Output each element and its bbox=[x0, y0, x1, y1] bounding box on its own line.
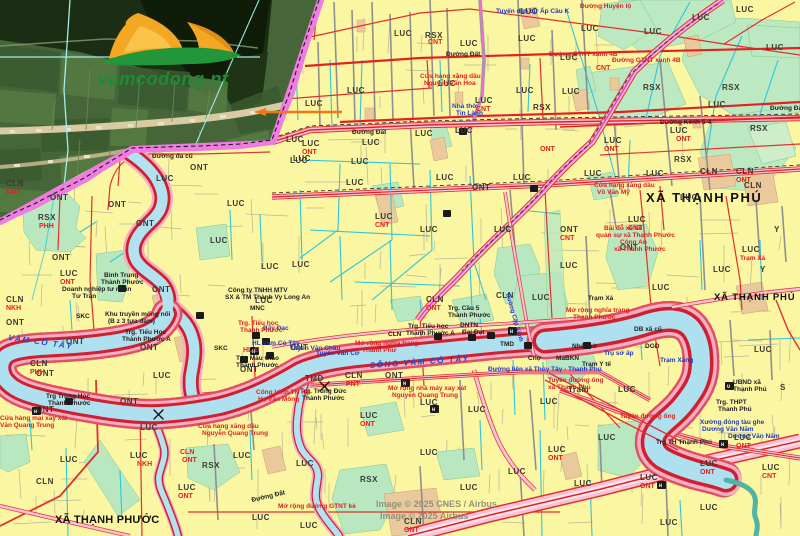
svg-text:Đường Huyện lộ: Đường Huyện lộ bbox=[580, 3, 631, 10]
svg-text:LUC: LUC bbox=[153, 371, 171, 380]
svg-text:LUC: LUC bbox=[670, 126, 688, 135]
svg-text:Mở rộng nghĩa trang: Mở rộng nghĩa trang bbox=[355, 340, 419, 347]
svg-text:HL.Đ: HL.Đ bbox=[243, 347, 259, 354]
svg-text:LUC: LUC bbox=[736, 5, 754, 14]
svg-text:Image © 2025 Airbus: Image © 2025 Airbus bbox=[380, 511, 468, 521]
svg-text:Trg. Mẫu Giáo: Trg. Mẫu Giáo bbox=[236, 353, 279, 362]
svg-text:Dương Văn Năm: Dương Văn Năm bbox=[702, 426, 754, 433]
svg-text:PHH: PHH bbox=[30, 369, 45, 376]
svg-text:xã Thành Phước: xã Thành Phước bbox=[614, 246, 666, 253]
svg-text:CLN: CLN bbox=[36, 477, 54, 486]
svg-text:ONT: ONT bbox=[182, 457, 198, 464]
svg-text:LUC: LUC bbox=[420, 225, 438, 234]
svg-text:LUC: LUC bbox=[156, 174, 174, 183]
svg-text:LUC: LUC bbox=[302, 139, 320, 148]
svg-text:Trg. Tiểu học: Trg. Tiểu học bbox=[408, 322, 449, 330]
svg-text:ONT: ONT bbox=[50, 193, 68, 202]
svg-text:LUC: LUC bbox=[420, 398, 438, 407]
svg-text:LUC: LUC bbox=[292, 260, 310, 269]
svg-text:CNT: CNT bbox=[762, 473, 777, 480]
svg-text:Đường Đất: Đường Đất bbox=[446, 50, 481, 58]
svg-text:LUC: LUC bbox=[475, 96, 493, 105]
svg-text:LUC: LUC bbox=[754, 345, 772, 354]
svg-text:SKC: SKC bbox=[76, 313, 90, 320]
svg-text:Cửa hàng xăng dầu: Cửa hàng xăng dầu bbox=[198, 421, 259, 430]
svg-text:RSX: RSX bbox=[674, 155, 692, 164]
svg-text:Thành Phước: Thành Phước bbox=[48, 400, 91, 407]
svg-text:ONT: ONT bbox=[190, 163, 208, 172]
svg-text:Đường đa cũ: Đường đa cũ bbox=[152, 153, 193, 160]
svg-text:Thanh Phước: Thanh Phước bbox=[236, 362, 279, 369]
svg-text:Trg Trung Học: Trg Trung Học bbox=[46, 393, 90, 400]
svg-text:xã Thạnh Phú: xã Thạnh Phú bbox=[548, 384, 591, 391]
svg-text:LUC: LUC bbox=[598, 433, 616, 442]
svg-text:CNT: CNT bbox=[428, 39, 443, 46]
svg-text:LUC: LUC bbox=[460, 39, 478, 48]
svg-text:ONT: ONT bbox=[136, 219, 154, 228]
svg-text:quản sự xã Thạnh Phước: quản sự xã Thạnh Phước bbox=[596, 232, 675, 239]
svg-text:Thanh Phước A: Thanh Phước A bbox=[406, 330, 455, 337]
svg-text:Nguyễn Quang Trung: Nguyễn Quang Trung bbox=[392, 390, 458, 399]
svg-text:Mở rộng nghĩa trang: Mở rộng nghĩa trang bbox=[566, 307, 630, 314]
svg-text:ONT: ONT bbox=[152, 285, 170, 294]
svg-text:SKC: SKC bbox=[214, 345, 228, 352]
svg-text:LUC: LUC bbox=[130, 451, 148, 460]
svg-text:ONT: ONT bbox=[736, 177, 752, 184]
svg-text:Cửa hàng xăng dầu: Cửa hàng xăng dầu bbox=[594, 180, 655, 189]
svg-text:LUC: LUC bbox=[518, 34, 536, 43]
svg-text:LUC: LUC bbox=[296, 459, 314, 468]
svg-text:Công ty TNHH MTV: Công ty TNHH MTV bbox=[228, 287, 288, 294]
svg-text:ONT: ONT bbox=[360, 421, 376, 428]
svg-text:LUC: LUC bbox=[540, 397, 558, 406]
svg-text:LUC: LUC bbox=[60, 269, 78, 278]
svg-text:ONT: ONT bbox=[700, 469, 716, 476]
svg-text:RSX: RSX bbox=[202, 461, 220, 470]
svg-text:LUC: LUC bbox=[347, 86, 365, 95]
svg-text:Thanh Phư: Thanh Phư bbox=[362, 347, 397, 354]
svg-text:DGD: DGD bbox=[645, 343, 660, 350]
svg-text:Cửa hàng xăng dầu: Cửa hàng xăng dầu bbox=[420, 71, 481, 80]
svg-text:LUC: LUC bbox=[140, 423, 158, 432]
svg-text:ONT: ONT bbox=[736, 443, 752, 450]
svg-text:vamcodong.nt: vamcodong.nt bbox=[98, 69, 229, 89]
svg-text:S: S bbox=[780, 383, 786, 392]
svg-text:CLN: CLN bbox=[30, 359, 48, 368]
svg-text:Hạ Văn Mông: Hạ Văn Mông bbox=[258, 396, 299, 403]
svg-text:NKH: NKH bbox=[6, 305, 21, 312]
svg-text:LUC: LUC bbox=[460, 483, 478, 492]
svg-text:Tư Trận: Tư Trận bbox=[72, 293, 96, 300]
svg-text:LUC: LUC bbox=[708, 100, 726, 109]
svg-text:DNTN: DNTN bbox=[460, 322, 478, 329]
svg-text:CLN: CLN bbox=[700, 167, 718, 176]
svg-text:LUC: LUC bbox=[548, 445, 566, 454]
svg-text:Khu truyền mống nối: Khu truyền mống nối bbox=[105, 309, 171, 318]
svg-text:ONT: ONT bbox=[108, 200, 126, 209]
svg-text:Đường Đất: Đường Đất bbox=[352, 128, 387, 136]
svg-text:LUC: LUC bbox=[618, 385, 636, 394]
svg-text:Nguyễn Văn Hoa: Nguyễn Văn Hoa bbox=[424, 78, 476, 87]
svg-text:ONT: ONT bbox=[548, 455, 564, 462]
svg-text:ONT: ONT bbox=[385, 371, 403, 380]
svg-text:Đường Đất: Đường Đất bbox=[770, 104, 800, 112]
svg-text:Thành Phước A: Thành Phước A bbox=[122, 336, 171, 343]
svg-text:LUC: LUC bbox=[604, 136, 622, 145]
svg-text:Thành Phước: Thành Phước bbox=[448, 312, 491, 319]
svg-text:CLN: CLN bbox=[6, 295, 24, 304]
svg-text:Công An: Công An bbox=[620, 239, 647, 246]
svg-text:LUC: LUC bbox=[660, 518, 678, 527]
svg-text:LUC: LUC bbox=[513, 173, 531, 182]
svg-text:CLN: CLN bbox=[180, 449, 194, 456]
svg-text:H: H bbox=[659, 483, 662, 489]
svg-text:CNT: CNT bbox=[596, 65, 611, 72]
svg-text:ONT: ONT bbox=[6, 318, 24, 327]
svg-text:LUC: LUC bbox=[415, 129, 433, 138]
svg-text:Mở rộng đường GTNT kè: Mở rộng đường GTNT kè bbox=[278, 503, 356, 510]
svg-text:ONT: ONT bbox=[404, 527, 420, 534]
svg-text:LUC: LUC bbox=[646, 169, 664, 178]
svg-text:CLN: CLN bbox=[6, 179, 24, 188]
svg-text:LUC: LUC bbox=[360, 411, 378, 420]
svg-text:Trg. Tiểu học: Trg. Tiểu học bbox=[238, 319, 279, 327]
svg-text:MaBKN: MaBKN bbox=[556, 355, 579, 362]
svg-text:Tuyến Văn Cơ: Tuyến Văn Cơ bbox=[316, 349, 360, 357]
svg-text:LUC: LUC bbox=[436, 173, 454, 182]
svg-text:LUC: LUC bbox=[532, 293, 550, 302]
svg-text:ONT: ONT bbox=[676, 136, 692, 143]
svg-text:LUC: LUC bbox=[581, 24, 599, 33]
svg-text:LUC: LUC bbox=[394, 29, 412, 38]
svg-text:Trụ sở ấp: Trụ sở ấp bbox=[604, 349, 634, 357]
svg-text:Cửa hàng mai xay xát: Cửa hàng mai xay xát bbox=[0, 415, 68, 422]
svg-text:LUC: LUC bbox=[375, 212, 393, 221]
svg-text:RSX: RSX bbox=[722, 83, 740, 92]
svg-text:Văn Quang Trung: Văn Quang Trung bbox=[0, 422, 54, 429]
svg-text:Trạm Xá: Trạm Xá bbox=[740, 255, 766, 262]
svg-text:Trg. Cầu 5: Trg. Cầu 5 bbox=[448, 303, 480, 312]
svg-text:LUC: LUC bbox=[692, 13, 710, 22]
svg-text:Image © 2025 CNES / Airbus: Image © 2025 CNES / Airbus bbox=[376, 499, 497, 509]
svg-text:ONT: ONT bbox=[540, 146, 556, 153]
svg-text:LUC: LUC bbox=[210, 236, 228, 245]
svg-text:LUC: LUC bbox=[584, 169, 602, 178]
svg-text:Doanh nghiệp tư nhân: Doanh nghiệp tư nhân bbox=[62, 286, 131, 293]
svg-text:Trg TH Thạnh Phú: Trg TH Thạnh Phú bbox=[656, 439, 712, 446]
svg-text:Đường GTNT xanh 4B: Đường GTNT xanh 4B bbox=[549, 51, 618, 58]
svg-text:Bãi đỗ xe tải: Bãi đỗ xe tải bbox=[604, 223, 642, 232]
svg-text:ONT: ONT bbox=[560, 225, 578, 234]
svg-text:Trg. THPT: Trg. THPT bbox=[716, 399, 747, 406]
svg-text:RSX: RSX bbox=[533, 103, 551, 112]
svg-text:LUC: LUC bbox=[700, 459, 718, 468]
svg-text:UBND xã: UBND xã bbox=[733, 379, 761, 386]
svg-text:Đường GTNT xanh 4B: Đường GTNT xanh 4B bbox=[612, 57, 681, 64]
svg-text:Tin Lành: Tin Lành bbox=[456, 110, 483, 117]
svg-text:CLN: CLN bbox=[426, 295, 444, 304]
svg-text:ONT: ONT bbox=[302, 149, 318, 156]
svg-text:LUC: LUC bbox=[640, 473, 658, 482]
svg-text:Võ Văn Mỹ: Võ Văn Mỹ bbox=[597, 189, 630, 196]
svg-text:XÃ THẠNH PHÚ: XÃ THẠNH PHÚ bbox=[714, 291, 795, 303]
svg-text:LUC: LUC bbox=[562, 87, 580, 96]
svg-text:LUC: LUC bbox=[574, 479, 592, 488]
svg-text:XÃ THẠNH PHƯỚC: XÃ THẠNH PHƯỚC bbox=[55, 513, 159, 526]
svg-text:Đường Kênh 5-4: Đường Kênh 5-4 bbox=[660, 119, 712, 126]
svg-text:LUC: LUC bbox=[508, 467, 526, 476]
svg-text:ONT: ONT bbox=[60, 279, 76, 286]
svg-text:LUC: LUC bbox=[652, 283, 670, 292]
svg-text:Tuyến đường ống: Tuyến đường ống bbox=[548, 376, 603, 384]
svg-text:NKH: NKH bbox=[137, 461, 152, 468]
svg-text:LUC: LUC bbox=[494, 225, 512, 234]
svg-text:LUC: LUC bbox=[233, 451, 251, 460]
svg-text:Nhà thờ: Nhà thờ bbox=[572, 343, 597, 350]
svg-text:DB xã cũ: DB xã cũ bbox=[634, 326, 662, 333]
svg-text:LUC: LUC bbox=[261, 262, 279, 271]
svg-text:LUC: LUC bbox=[178, 483, 196, 492]
svg-text:Dương Văn Năm: Dương Văn Năm bbox=[728, 433, 780, 440]
svg-text:H: H bbox=[510, 329, 513, 335]
svg-text:LUC: LUC bbox=[455, 126, 473, 135]
svg-text:Thạnh Phú: Thạnh Phú bbox=[733, 386, 767, 393]
svg-text:CLN: CLN bbox=[345, 371, 363, 380]
svg-text:Trg. Tiểu Học: Trg. Tiểu Học bbox=[125, 328, 166, 336]
svg-text:Nguyễn Quang Trung: Nguyễn Quang Trung bbox=[202, 428, 268, 437]
svg-text:Đường liên xã Thủy Tây - Thanh: Đường liên xã Thủy Tây - Thanh Phú bbox=[488, 366, 602, 373]
svg-text:MNC: MNC bbox=[250, 305, 265, 312]
svg-text:ONT: ONT bbox=[472, 183, 490, 192]
svg-text:Trạm Xá: Trạm Xá bbox=[588, 295, 614, 302]
svg-text:Thanh Phú: Thanh Phú bbox=[718, 406, 752, 413]
svg-text:ONT: ONT bbox=[52, 253, 70, 262]
svg-text:RSX: RSX bbox=[750, 124, 768, 133]
svg-text:TMD: TMD bbox=[500, 341, 514, 348]
svg-text:ONT: ONT bbox=[66, 337, 84, 346]
svg-text:Thanh Phước: Thanh Phước bbox=[573, 314, 616, 321]
svg-text:H: H bbox=[432, 407, 435, 413]
svg-text:Đại Đạt: Đại Đạt bbox=[462, 329, 485, 336]
svg-text:Trạm Xăng: Trạm Xăng bbox=[660, 357, 693, 364]
svg-text:LUC: LUC bbox=[700, 503, 718, 512]
svg-text:Công trình TN KR: Công trình TN KR bbox=[256, 389, 311, 396]
svg-text:LUC: LUC bbox=[766, 43, 784, 52]
svg-text:CNT: CNT bbox=[560, 235, 575, 242]
svg-text:LUC: LUC bbox=[60, 455, 78, 464]
svg-text:U: U bbox=[727, 384, 730, 390]
svg-text:PHH: PHH bbox=[39, 223, 54, 230]
svg-text:ONT: ONT bbox=[640, 483, 656, 490]
svg-text:ONT: ONT bbox=[120, 397, 138, 406]
svg-text:LUC: LUC bbox=[468, 405, 486, 414]
svg-text:LUC: LUC bbox=[346, 178, 364, 187]
svg-text:CLN: CLN bbox=[388, 331, 402, 338]
svg-text:Mở rộng nhà máy xay xát: Mở rộng nhà máy xay xát bbox=[388, 385, 467, 392]
svg-text:ONT: ONT bbox=[604, 146, 620, 153]
svg-text:LUC: LUC bbox=[351, 157, 369, 166]
svg-text:Y: Y bbox=[774, 225, 780, 234]
svg-text:LUC: LUC bbox=[305, 99, 323, 108]
svg-text:ONT: ONT bbox=[178, 493, 194, 500]
svg-text:RSX: RSX bbox=[360, 475, 378, 484]
svg-text:Thạnh Phước: Thạnh Phước bbox=[240, 327, 283, 334]
svg-text:CNT: CNT bbox=[375, 222, 390, 229]
svg-text:LUC: LUC bbox=[362, 138, 380, 147]
svg-text:H: H bbox=[721, 442, 724, 448]
svg-text:LUC: LUC bbox=[286, 135, 304, 144]
svg-text:Thành Phước: Thành Phước bbox=[302, 395, 345, 402]
svg-text:ONT: ONT bbox=[6, 189, 22, 196]
svg-text:RSX: RSX bbox=[643, 83, 661, 92]
svg-text:CLN: CLN bbox=[404, 517, 422, 526]
svg-text:TMD: TMD bbox=[305, 374, 324, 383]
svg-text:(B z 3 tựa đảm): (B z 3 tựa đảm) bbox=[108, 318, 155, 325]
svg-text:Tuyến đường ống: Tuyến đường ống bbox=[620, 412, 675, 420]
svg-text:Nhà thờ: Nhà thờ bbox=[452, 103, 477, 110]
svg-text:Chợ: Chợ bbox=[528, 355, 542, 362]
svg-text:LUC: LUC bbox=[742, 245, 760, 254]
svg-text:LUC: LUC bbox=[628, 215, 646, 224]
svg-text:ONT: ONT bbox=[140, 343, 158, 352]
svg-text:Xưởng đóng tàu ghe: Xưởng đóng tàu ghe bbox=[700, 419, 765, 426]
svg-text:ONT: ONT bbox=[426, 305, 442, 312]
svg-text:Thành Phước: Thành Phước bbox=[101, 279, 144, 286]
svg-text:LUC: LUC bbox=[516, 86, 534, 95]
svg-text:Y: Y bbox=[760, 265, 766, 274]
svg-text:Bình Trung: Bình Trung bbox=[104, 272, 138, 279]
svg-text:LUC: LUC bbox=[300, 521, 318, 530]
svg-text:LUC: LUC bbox=[252, 513, 270, 522]
svg-text:LUC: LUC bbox=[644, 27, 662, 36]
svg-text:XÃ THẠNH PHÚ: XÃ THẠNH PHÚ bbox=[646, 190, 762, 205]
svg-text:CLN: CLN bbox=[736, 167, 754, 176]
svg-text:LUC: LUC bbox=[227, 199, 245, 208]
svg-text:RSX: RSX bbox=[38, 213, 56, 222]
svg-text:PNT: PNT bbox=[346, 381, 361, 388]
svg-text:SX & TM Thành Vy Long An: SX & TM Thành Vy Long An bbox=[225, 294, 310, 301]
svg-text:LUC: LUC bbox=[713, 265, 731, 274]
svg-text:LUC: LUC bbox=[560, 261, 578, 270]
svg-text:LUC: LUC bbox=[762, 463, 780, 472]
svg-text:LUC: LUC bbox=[420, 448, 438, 457]
svg-text:LUC: LUC bbox=[680, 193, 698, 202]
